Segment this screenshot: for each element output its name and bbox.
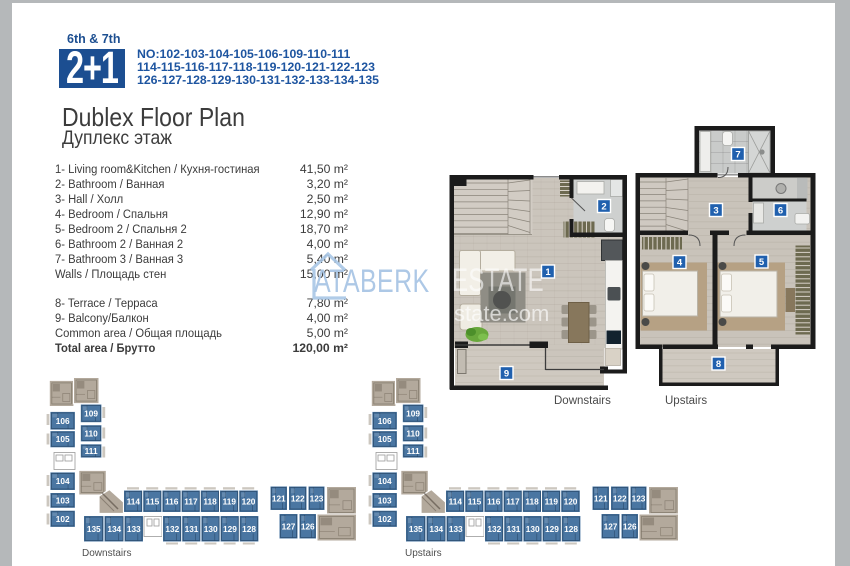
svg-text:103: 103 — [56, 495, 70, 505]
svg-text:131: 131 — [185, 524, 199, 534]
svg-text:4: 4 — [677, 257, 683, 268]
svg-text:114: 114 — [127, 496, 141, 506]
svg-text:114: 114 — [449, 496, 463, 506]
svg-text:132: 132 — [487, 524, 501, 534]
svg-text:127: 127 — [604, 521, 618, 531]
svg-text:129: 129 — [223, 524, 237, 534]
svg-text:131: 131 — [507, 524, 521, 534]
svg-text:130: 130 — [204, 524, 218, 534]
svg-text:116: 116 — [165, 496, 179, 506]
svg-text:111: 111 — [85, 446, 98, 456]
svg-text:121: 121 — [594, 493, 608, 503]
svg-text:3: 3 — [713, 205, 718, 216]
svg-text:2: 2 — [601, 201, 606, 212]
svg-text:133: 133 — [127, 524, 141, 534]
svg-text:120: 120 — [242, 496, 256, 506]
svg-text:129: 129 — [545, 524, 559, 534]
svg-text:128: 128 — [242, 524, 256, 534]
svg-text:106: 106 — [378, 416, 392, 426]
svg-text:118: 118 — [203, 496, 217, 506]
svg-text:103: 103 — [378, 495, 392, 505]
svg-text:104: 104 — [56, 476, 70, 486]
svg-text:6: 6 — [778, 205, 783, 216]
svg-text:128: 128 — [564, 524, 578, 534]
svg-text:127: 127 — [282, 521, 296, 531]
svg-text:102: 102 — [378, 514, 392, 524]
svg-text:117: 117 — [506, 496, 520, 506]
svg-text:134: 134 — [429, 524, 443, 534]
svg-text:121: 121 — [272, 493, 286, 503]
svg-text:109: 109 — [84, 408, 98, 418]
svg-text:105: 105 — [378, 434, 392, 444]
svg-text:105: 105 — [56, 434, 70, 444]
svg-text:104: 104 — [378, 476, 392, 486]
svg-text:122: 122 — [613, 493, 627, 503]
svg-text:1: 1 — [545, 267, 551, 278]
svg-text:132: 132 — [165, 524, 179, 534]
svg-text:120: 120 — [564, 496, 578, 506]
svg-text:110: 110 — [84, 428, 98, 438]
svg-text:7: 7 — [735, 149, 740, 160]
svg-text:115: 115 — [146, 496, 160, 506]
svg-text:8: 8 — [716, 359, 721, 370]
svg-text:109: 109 — [406, 408, 420, 418]
svg-text:111: 111 — [407, 446, 420, 456]
svg-text:126: 126 — [623, 521, 637, 531]
svg-text:118: 118 — [525, 496, 539, 506]
svg-text:106: 106 — [56, 416, 70, 426]
svg-text:123: 123 — [310, 493, 324, 503]
svg-text:119: 119 — [545, 496, 559, 506]
svg-text:115: 115 — [468, 496, 482, 506]
svg-text:116: 116 — [487, 496, 501, 506]
svg-text:123: 123 — [632, 493, 646, 503]
svg-text:126: 126 — [301, 521, 315, 531]
svg-text:122: 122 — [291, 493, 305, 503]
svg-text:135: 135 — [87, 524, 101, 534]
svg-text:133: 133 — [449, 524, 463, 534]
svg-text:5: 5 — [759, 257, 765, 268]
svg-text:135: 135 — [409, 524, 423, 534]
svg-text:119: 119 — [223, 496, 237, 506]
svg-text:134: 134 — [107, 524, 121, 534]
svg-text:130: 130 — [526, 524, 540, 534]
svg-text:110: 110 — [406, 428, 420, 438]
svg-text:102: 102 — [56, 514, 70, 524]
svg-text:117: 117 — [184, 496, 198, 506]
